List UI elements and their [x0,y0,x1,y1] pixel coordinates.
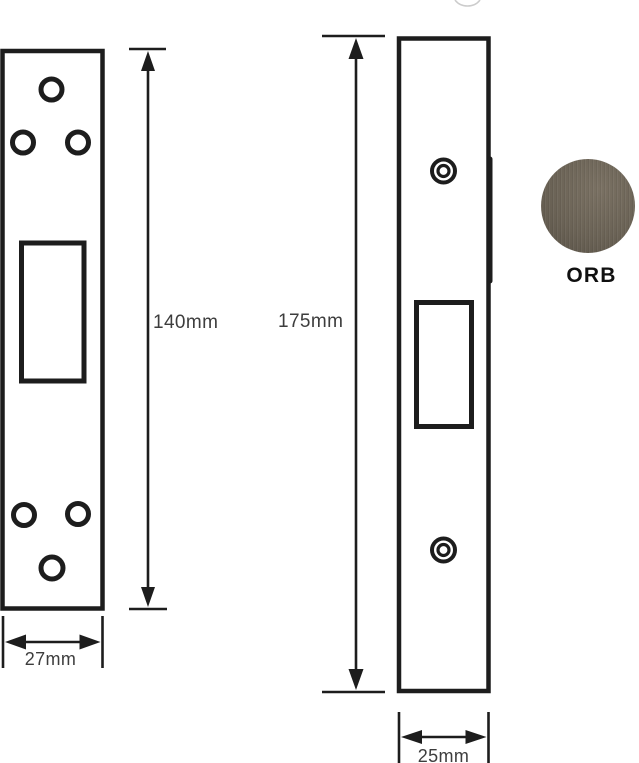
screw-hole-inner [438,545,449,556]
screw-hole-inner [438,166,449,177]
screw-hole [41,79,62,100]
screw-hole [41,557,63,579]
arrow-right-icon [80,635,101,650]
screw-hole [68,504,89,525]
faceplate-line-drawing [0,0,639,763]
screw-hole [14,505,35,526]
arrow-left-icon [401,730,422,744]
left-height-dimension-label: 140mm [153,313,218,332]
arrow-left-icon [5,635,26,650]
bolt-aperture [417,303,472,427]
arrow-down-icon [349,669,364,690]
left-width-dimension-label: 27mm [10,650,91,668]
right-faceplate [399,39,490,692]
screw-hole-outer [432,539,455,562]
right-height-dimension [322,36,385,692]
right-faceplate-outline [399,39,489,692]
arrow-up-icon [141,51,155,71]
screw-hole-outer [432,160,455,183]
left-faceplate [3,51,103,609]
lock-faceplate-dimension-diagram: 140mm 175mm 27mm 25mm ORB [0,0,639,763]
cropped-shape-artifact [455,0,480,6]
right-width-dimension-label: 25mm [403,747,484,763]
finish-label: ORB [551,265,632,287]
finish-swatch-orb [541,159,635,253]
arrow-right-icon [466,730,487,744]
screw-hole [13,132,34,153]
bolt-aperture [22,243,85,381]
arrow-up-icon [349,38,364,59]
arrow-down-icon [141,587,155,607]
right-height-dimension-label: 175mm [278,312,342,331]
screw-hole [68,132,89,153]
